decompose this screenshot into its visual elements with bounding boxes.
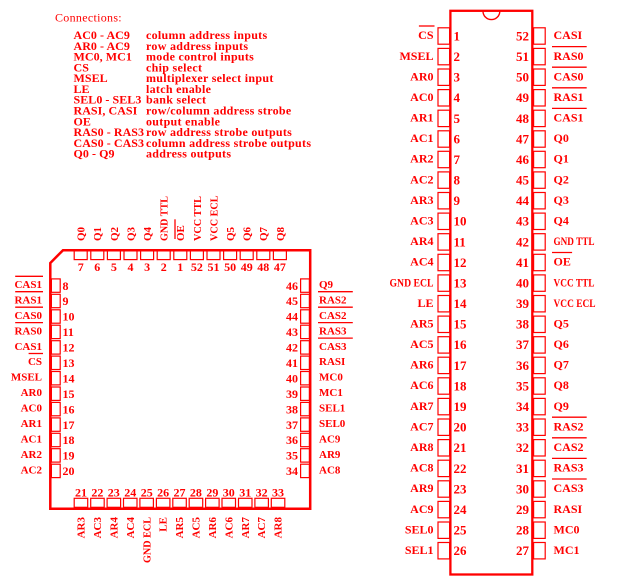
svg-text:OE: OE	[554, 255, 571, 269]
svg-text:30: 30	[223, 486, 235, 500]
svg-text:44: 44	[286, 310, 298, 324]
svg-text:Q0: Q0	[554, 131, 569, 145]
svg-text:7: 7	[78, 260, 84, 274]
svg-text:22: 22	[91, 486, 103, 500]
svg-text:Q9: Q9	[319, 279, 334, 291]
svg-text:AR7: AR7	[240, 517, 252, 539]
svg-text:11: 11	[63, 325, 74, 339]
svg-text:Q7: Q7	[258, 226, 270, 241]
svg-text:AC3: AC3	[410, 214, 433, 228]
svg-text:26: 26	[454, 543, 468, 558]
svg-text:14: 14	[454, 296, 468, 311]
svg-text:2: 2	[454, 49, 461, 64]
svg-text:AC0: AC0	[21, 403, 43, 415]
svg-text:28: 28	[190, 486, 202, 500]
svg-text:38: 38	[516, 317, 530, 332]
svg-text:address outputs: address outputs	[146, 147, 231, 161]
svg-text:22: 22	[454, 461, 467, 476]
svg-text:Q1: Q1	[92, 227, 104, 241]
svg-text:41: 41	[286, 356, 298, 370]
svg-text:VCC ECL: VCC ECL	[554, 296, 596, 310]
svg-text:50: 50	[516, 70, 529, 85]
svg-text:36: 36	[286, 433, 298, 447]
svg-text:SEL0: SEL0	[405, 522, 434, 536]
svg-text:Q0 - Q9: Q0 - Q9	[74, 147, 115, 161]
svg-text:17: 17	[63, 418, 75, 432]
svg-text:RASI: RASI	[554, 502, 583, 516]
svg-text:51: 51	[208, 260, 220, 274]
svg-text:27: 27	[174, 486, 186, 500]
svg-text:23: 23	[454, 481, 468, 496]
svg-text:47: 47	[516, 131, 530, 146]
svg-text:40: 40	[286, 371, 298, 385]
svg-text:35: 35	[516, 378, 530, 393]
svg-text:AR9: AR9	[410, 481, 433, 495]
svg-text:47: 47	[274, 260, 286, 274]
svg-text:AR0: AR0	[21, 387, 43, 399]
svg-text:AR3: AR3	[410, 193, 433, 207]
svg-text:CS: CS	[28, 356, 42, 368]
svg-text:MC0: MC0	[319, 372, 343, 384]
svg-text:SEL1: SEL1	[319, 403, 345, 415]
svg-text:52: 52	[191, 260, 203, 274]
svg-text:33: 33	[516, 420, 530, 435]
svg-text:11: 11	[454, 234, 466, 249]
svg-text:21: 21	[75, 486, 87, 500]
svg-text:CAS2: CAS2	[554, 440, 584, 454]
svg-text:4: 4	[128, 260, 134, 274]
svg-text:CAS1: CAS1	[14, 279, 42, 291]
svg-text:5: 5	[111, 260, 117, 274]
svg-text:12: 12	[63, 341, 75, 355]
svg-text:AR2: AR2	[21, 449, 43, 461]
svg-text:AR0: AR0	[410, 69, 433, 83]
svg-text:CAS2: CAS2	[319, 310, 347, 322]
svg-text:RAS1: RAS1	[554, 90, 584, 104]
svg-text:VCC ECL: VCC ECL	[208, 196, 220, 242]
svg-text:LE: LE	[417, 296, 433, 310]
svg-text:Connections:: Connections:	[55, 11, 122, 25]
svg-text:GND TTL: GND TTL	[159, 196, 171, 241]
svg-text:Q9: Q9	[554, 399, 569, 413]
svg-text:AC5: AC5	[410, 337, 433, 351]
svg-text:14: 14	[63, 371, 75, 385]
svg-text:CS: CS	[418, 28, 434, 42]
svg-text:49: 49	[241, 260, 253, 274]
svg-text:AR1: AR1	[21, 418, 42, 430]
svg-text:46: 46	[516, 152, 530, 167]
svg-text:44: 44	[516, 193, 530, 208]
svg-text:5: 5	[454, 111, 461, 126]
svg-text:40: 40	[516, 276, 529, 291]
svg-text:39: 39	[286, 387, 298, 401]
svg-text:39: 39	[516, 296, 530, 311]
svg-text:AR6: AR6	[410, 358, 433, 372]
svg-text:37: 37	[286, 418, 298, 432]
svg-text:25: 25	[141, 486, 153, 500]
svg-text:AR8: AR8	[410, 440, 433, 454]
svg-text:Q0: Q0	[76, 226, 88, 241]
svg-text:2: 2	[161, 260, 167, 274]
svg-text:AC7: AC7	[410, 419, 433, 433]
svg-text:51: 51	[516, 49, 529, 64]
svg-text:AR2: AR2	[410, 152, 433, 166]
svg-text:Q8: Q8	[275, 226, 287, 241]
svg-text:1: 1	[177, 260, 183, 274]
svg-text:4: 4	[454, 90, 461, 105]
svg-text:32: 32	[516, 440, 529, 455]
svg-text:AC9: AC9	[410, 502, 433, 516]
svg-text:Q6: Q6	[554, 337, 569, 351]
svg-text:GND TTL: GND TTL	[554, 234, 595, 248]
svg-text:6: 6	[94, 260, 100, 274]
svg-text:CASI: CASI	[554, 28, 583, 42]
svg-text:34: 34	[286, 464, 298, 478]
svg-text:9: 9	[454, 193, 461, 208]
svg-text:6: 6	[454, 131, 461, 146]
svg-text:Q2: Q2	[554, 172, 569, 186]
svg-text:21: 21	[454, 440, 467, 455]
svg-text:AR4: AR4	[410, 234, 433, 248]
svg-text:10: 10	[63, 310, 75, 324]
svg-text:33: 33	[272, 486, 284, 500]
svg-text:20: 20	[63, 464, 75, 478]
svg-text:43: 43	[286, 325, 298, 339]
svg-text:AC1: AC1	[21, 433, 42, 445]
svg-text:AC5: AC5	[191, 517, 203, 539]
svg-text:AR1: AR1	[410, 111, 433, 125]
svg-text:OE: OE	[175, 225, 187, 241]
svg-text:VCC TTL: VCC TTL	[554, 275, 595, 289]
svg-text:38: 38	[286, 402, 298, 416]
svg-text:RASI: RASI	[319, 356, 345, 368]
svg-text:3: 3	[144, 260, 150, 274]
svg-text:13: 13	[454, 276, 468, 291]
svg-text:RAS1: RAS1	[14, 294, 42, 306]
svg-text:50: 50	[224, 260, 236, 274]
svg-text:AC6: AC6	[410, 378, 433, 392]
svg-text:18: 18	[63, 433, 75, 447]
svg-text:18: 18	[454, 378, 468, 393]
svg-text:48: 48	[257, 260, 269, 274]
svg-text:AR6: AR6	[207, 517, 219, 539]
svg-text:34: 34	[516, 399, 530, 414]
svg-text:48: 48	[516, 111, 530, 126]
svg-text:24: 24	[124, 486, 136, 500]
svg-text:27: 27	[516, 543, 530, 558]
svg-text:36: 36	[516, 358, 530, 373]
svg-text:LE: LE	[158, 517, 170, 532]
svg-text:MC0: MC0	[554, 522, 580, 536]
svg-text:Q7: Q7	[554, 358, 569, 372]
svg-text:19: 19	[454, 399, 468, 414]
svg-text:AC0: AC0	[410, 90, 433, 104]
svg-text:AR4: AR4	[108, 517, 120, 539]
svg-text:31: 31	[239, 486, 251, 500]
svg-text:SEL1: SEL1	[405, 543, 434, 557]
svg-text:3: 3	[454, 70, 461, 85]
svg-text:24: 24	[454, 502, 468, 517]
svg-text:AR7: AR7	[410, 399, 433, 413]
svg-text:17: 17	[454, 358, 468, 373]
svg-text:MC1: MC1	[319, 387, 343, 399]
svg-text:AC2: AC2	[21, 464, 43, 476]
svg-text:Q2: Q2	[109, 226, 121, 241]
svg-text:AC9: AC9	[319, 433, 341, 445]
svg-text:RAS0: RAS0	[14, 325, 42, 337]
svg-text:RAS2: RAS2	[319, 294, 347, 306]
svg-text:41: 41	[516, 255, 529, 270]
svg-text:29: 29	[516, 502, 530, 517]
svg-text:Q1: Q1	[554, 152, 569, 166]
svg-text:AR3: AR3	[76, 517, 88, 539]
svg-text:MSEL: MSEL	[399, 49, 433, 63]
svg-text:29: 29	[206, 486, 218, 500]
svg-text:28: 28	[516, 523, 530, 538]
svg-text:Q8: Q8	[554, 378, 569, 392]
svg-text:32: 32	[256, 486, 268, 500]
svg-text:1: 1	[454, 28, 461, 43]
svg-text:7: 7	[454, 152, 461, 167]
svg-text:46: 46	[286, 279, 298, 293]
svg-text:15: 15	[63, 387, 75, 401]
svg-text:Q6: Q6	[242, 226, 254, 241]
svg-text:AC1: AC1	[410, 131, 433, 145]
svg-text:52: 52	[516, 28, 529, 43]
svg-text:45: 45	[516, 173, 530, 188]
svg-text:31: 31	[516, 461, 529, 476]
svg-text:16: 16	[454, 337, 468, 352]
svg-text:RAS0: RAS0	[554, 49, 584, 63]
svg-text:CAS0: CAS0	[554, 69, 584, 83]
svg-text:13: 13	[63, 356, 75, 370]
svg-text:19: 19	[63, 449, 75, 463]
svg-text:AR5: AR5	[174, 517, 186, 539]
svg-text:15: 15	[454, 317, 468, 332]
svg-text:Q3: Q3	[554, 193, 569, 207]
svg-text:12: 12	[454, 255, 467, 270]
svg-text:Q4: Q4	[554, 214, 569, 228]
svg-text:AR8: AR8	[273, 517, 285, 539]
svg-text:RAS3: RAS3	[319, 325, 347, 337]
svg-text:42: 42	[516, 234, 529, 249]
svg-text:AC2: AC2	[410, 172, 433, 186]
svg-text:AC6: AC6	[223, 517, 235, 539]
svg-text:42: 42	[286, 341, 298, 355]
svg-text:RAS2: RAS2	[554, 419, 584, 433]
svg-text:20: 20	[454, 420, 467, 435]
svg-text:RAS3: RAS3	[554, 461, 584, 475]
svg-text:AC7: AC7	[256, 517, 268, 539]
svg-text:AR9: AR9	[319, 449, 341, 461]
svg-text:CAS1: CAS1	[554, 111, 584, 125]
svg-text:AC8: AC8	[319, 464, 341, 476]
svg-text:CAS3: CAS3	[554, 481, 584, 495]
svg-text:AC8: AC8	[410, 461, 433, 475]
svg-text:AC4: AC4	[410, 255, 433, 269]
svg-text:37: 37	[516, 337, 530, 352]
svg-text:8: 8	[454, 173, 461, 188]
svg-text:AR5: AR5	[410, 317, 433, 331]
svg-text:23: 23	[108, 486, 120, 500]
svg-text:49: 49	[516, 90, 530, 105]
svg-text:8: 8	[63, 279, 69, 293]
svg-text:CAS1: CAS1	[14, 341, 42, 353]
svg-text:25: 25	[454, 523, 468, 538]
svg-text:30: 30	[516, 481, 529, 496]
svg-text:MC1: MC1	[554, 543, 580, 557]
svg-text:35: 35	[286, 449, 298, 463]
svg-text:CAS0: CAS0	[14, 310, 42, 322]
svg-text:SEL0: SEL0	[319, 418, 346, 430]
svg-text:Q5: Q5	[554, 317, 569, 331]
svg-text:VCC TTL: VCC TTL	[192, 196, 204, 241]
svg-text:16: 16	[63, 402, 75, 416]
svg-text:GND ECL: GND ECL	[141, 517, 153, 563]
svg-text:10: 10	[454, 214, 467, 229]
svg-text:AC4: AC4	[125, 517, 137, 539]
svg-text:CAS3: CAS3	[319, 341, 347, 353]
svg-text:Q4: Q4	[142, 226, 154, 241]
svg-text:GND ECL: GND ECL	[390, 275, 434, 289]
svg-text:9: 9	[63, 294, 69, 308]
svg-text:26: 26	[157, 486, 169, 500]
svg-text:43: 43	[516, 214, 530, 229]
svg-text:MSEL: MSEL	[11, 372, 42, 384]
svg-text:45: 45	[286, 294, 298, 308]
svg-text:Q5: Q5	[225, 226, 237, 241]
svg-text:Q3: Q3	[125, 226, 137, 241]
svg-text:AC3: AC3	[92, 517, 104, 539]
